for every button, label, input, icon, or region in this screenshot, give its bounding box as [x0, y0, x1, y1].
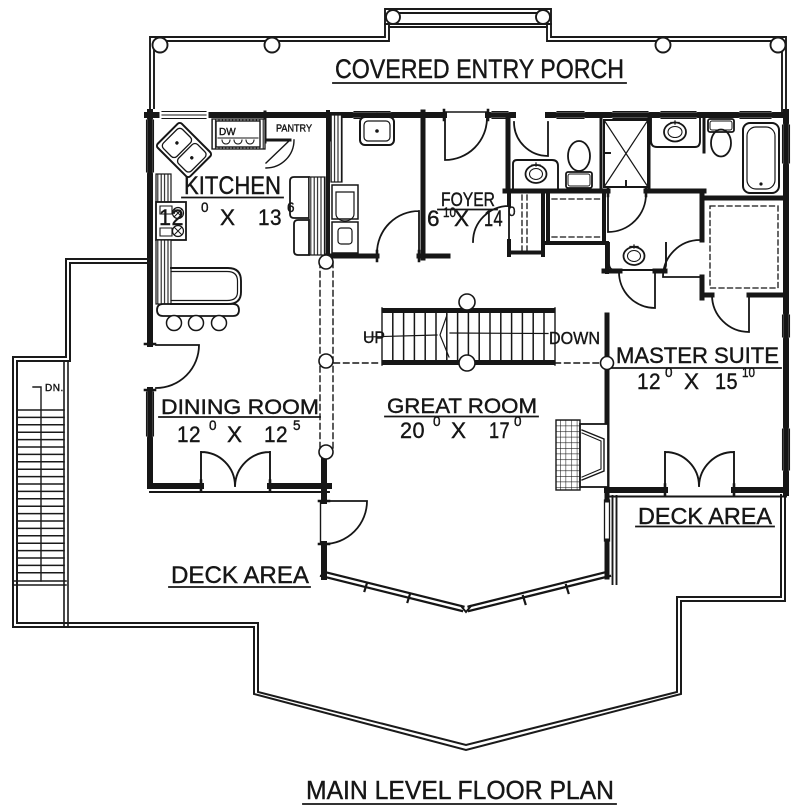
svg-text:5: 5 — [293, 418, 301, 433]
svg-text:12: 12 — [177, 422, 201, 447]
svg-text:X: X — [227, 422, 243, 447]
svg-text:X: X — [684, 369, 700, 394]
svg-text:12: 12 — [264, 422, 288, 447]
svg-text:KITCHEN: KITCHEN — [184, 172, 281, 200]
svg-text:17: 17 — [489, 418, 510, 443]
svg-text:6: 6 — [427, 206, 440, 231]
svg-text:10: 10 — [742, 365, 755, 380]
svg-text:DECK AREA: DECK AREA — [171, 562, 309, 589]
svg-text:DINING ROOM: DINING ROOM — [161, 395, 319, 419]
svg-text:14: 14 — [484, 206, 503, 231]
svg-text:6: 6 — [287, 200, 295, 215]
svg-text:X: X — [454, 206, 470, 231]
svg-text:UP: UP — [363, 328, 385, 347]
svg-text:X: X — [220, 205, 236, 230]
svg-text:13: 13 — [258, 205, 282, 230]
svg-text:0: 0 — [201, 200, 209, 215]
svg-text:0: 0 — [433, 414, 441, 429]
svg-text:0: 0 — [514, 414, 522, 429]
svg-text:DOWN: DOWN — [549, 328, 600, 348]
svg-text:20: 20 — [400, 418, 425, 443]
svg-text:15: 15 — [715, 369, 738, 394]
svg-text:DECK AREA: DECK AREA — [638, 503, 773, 529]
svg-text:0: 0 — [209, 418, 217, 433]
svg-text:MAIN LEVEL FLOOR PLAN: MAIN LEVEL FLOOR PLAN — [306, 777, 614, 805]
svg-text:0: 0 — [665, 365, 673, 380]
svg-text:12: 12 — [159, 205, 184, 230]
svg-text:12: 12 — [637, 369, 661, 394]
svg-text:0: 0 — [508, 204, 516, 219]
svg-text:PANTRY: PANTRY — [276, 123, 312, 135]
svg-text:COVERED ENTRY PORCH: COVERED ENTRY PORCH — [335, 54, 624, 84]
svg-text:DW: DW — [219, 127, 236, 138]
svg-text:X: X — [451, 418, 467, 443]
svg-text:DN.: DN. — [45, 383, 64, 394]
